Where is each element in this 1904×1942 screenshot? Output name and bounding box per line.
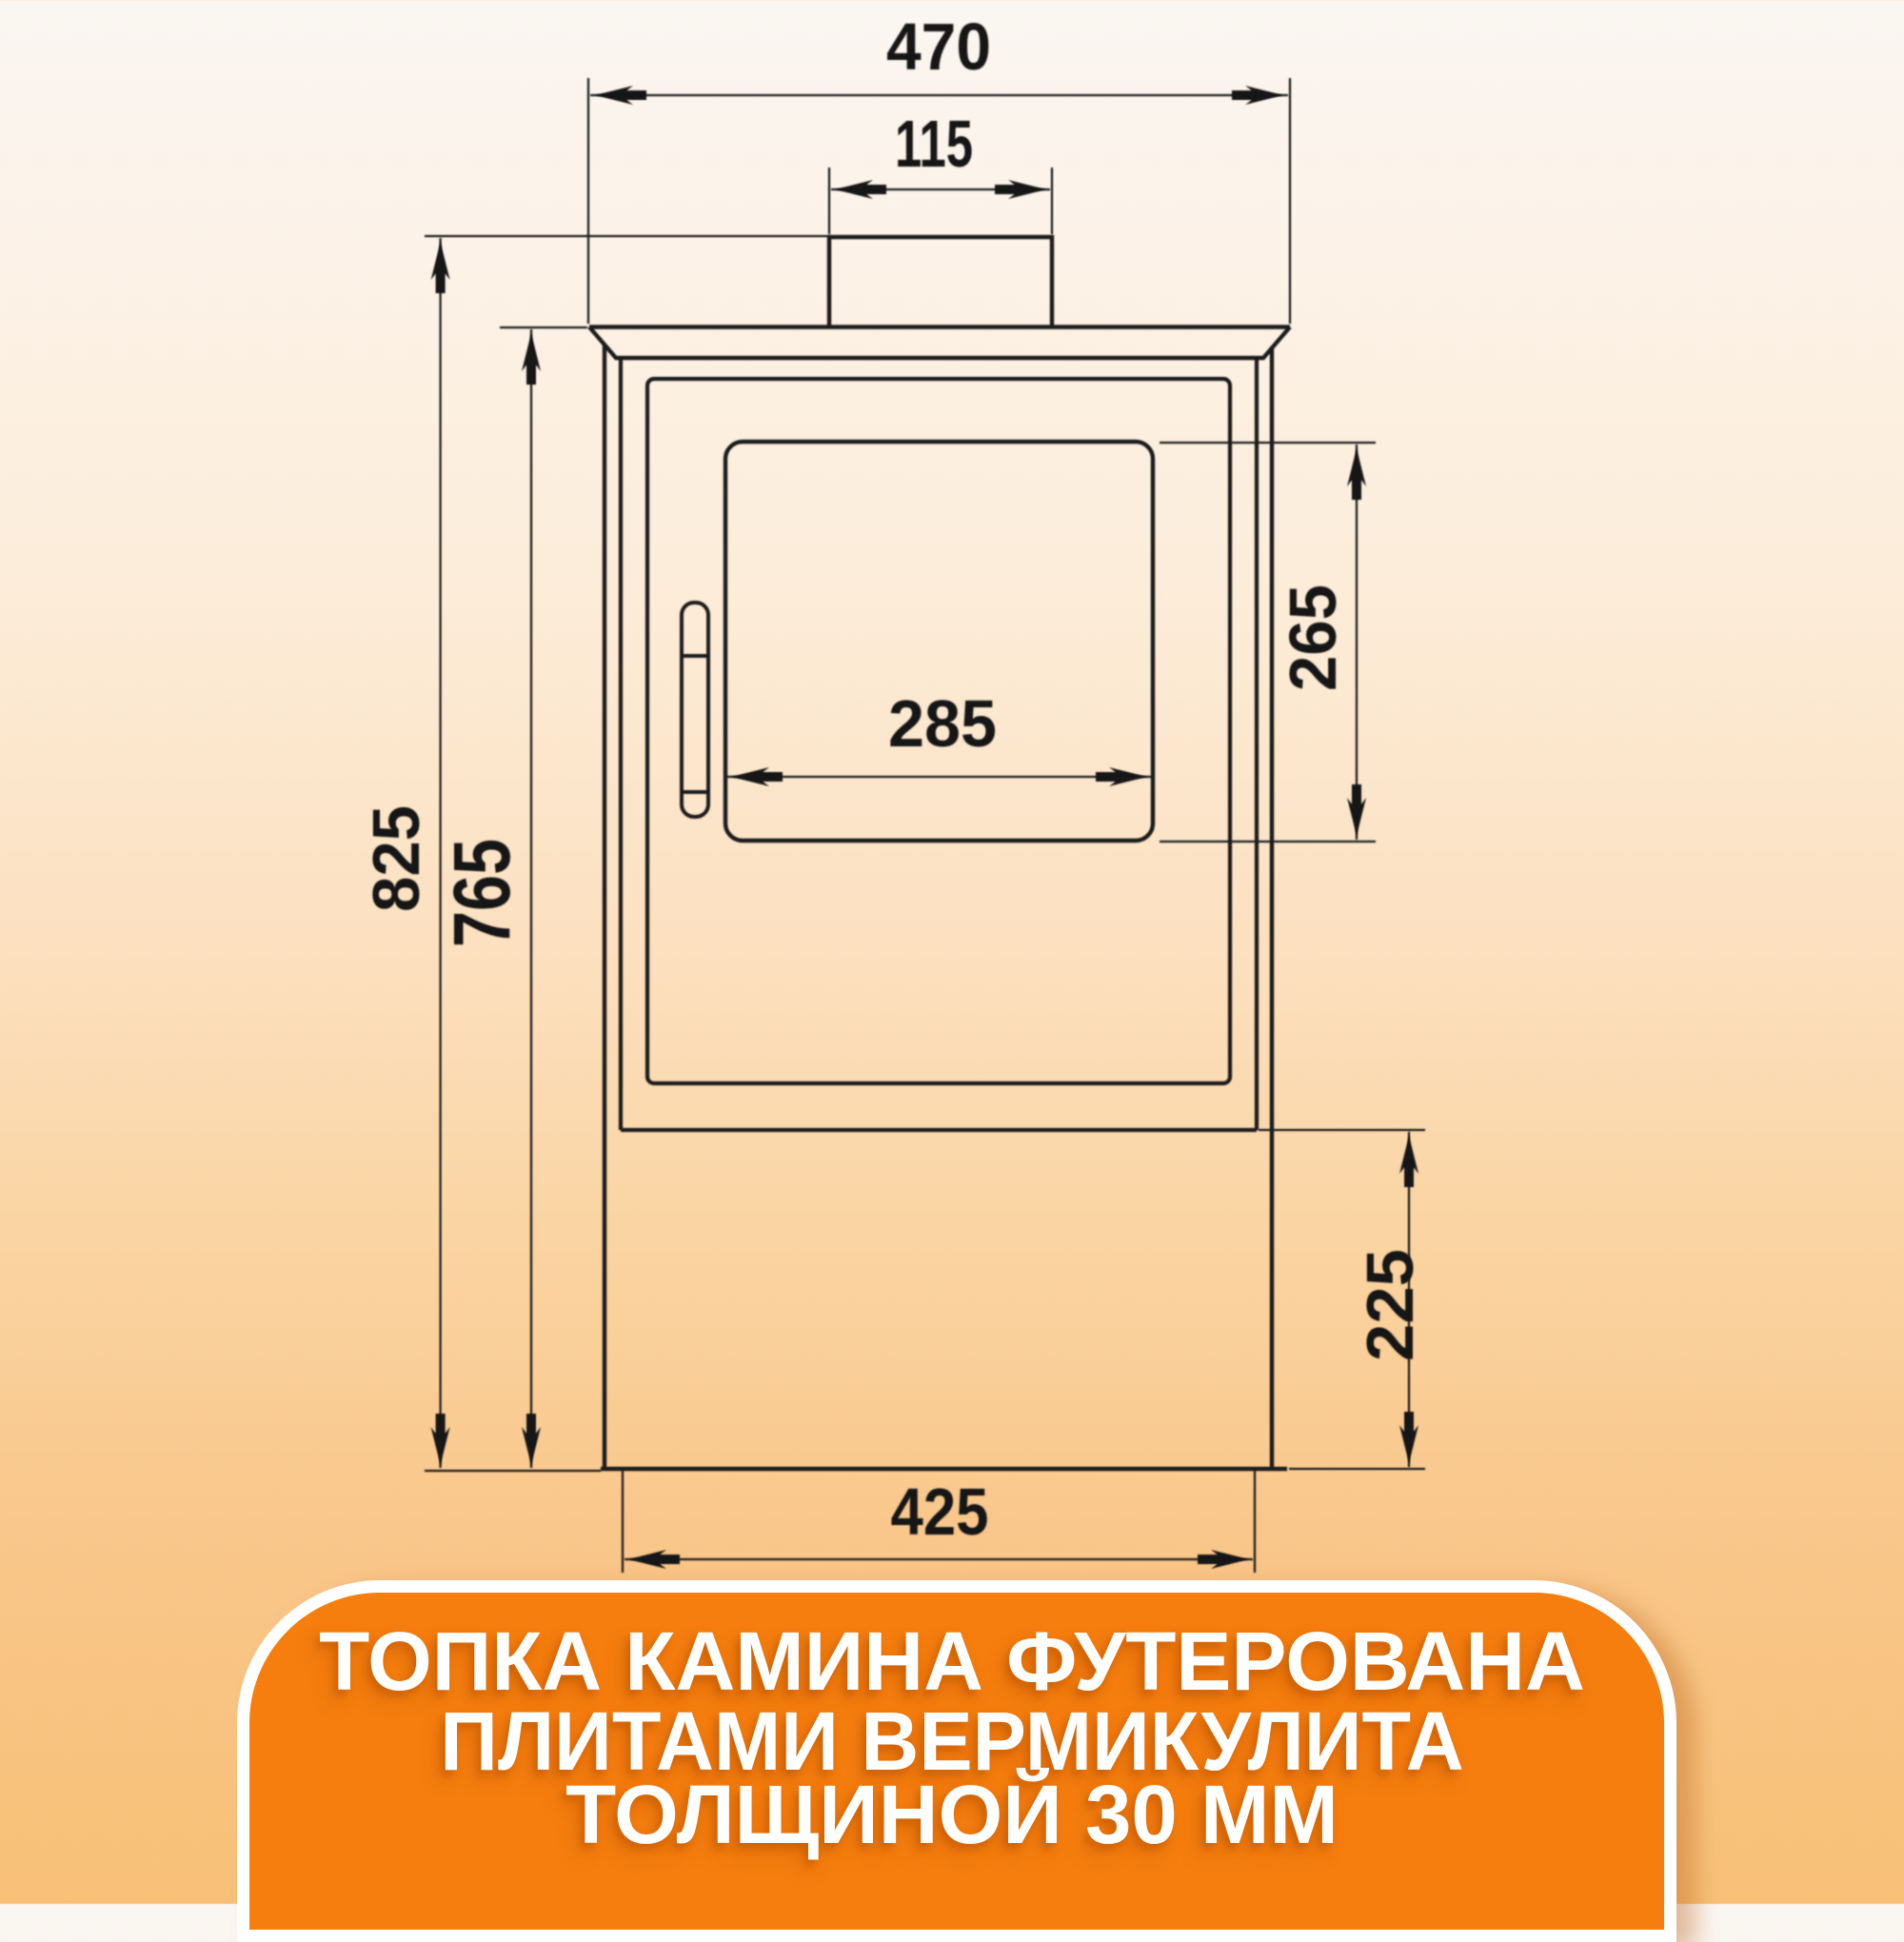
- svg-text:425: 425: [891, 1475, 989, 1549]
- svg-text:765: 765: [437, 839, 526, 947]
- svg-text:825: 825: [359, 805, 433, 912]
- svg-text:225: 225: [1353, 1249, 1427, 1361]
- svg-text:265: 265: [1276, 585, 1350, 691]
- svg-text:470: 470: [886, 10, 991, 84]
- svg-text:115: 115: [895, 107, 973, 181]
- svg-text:285: 285: [888, 686, 997, 761]
